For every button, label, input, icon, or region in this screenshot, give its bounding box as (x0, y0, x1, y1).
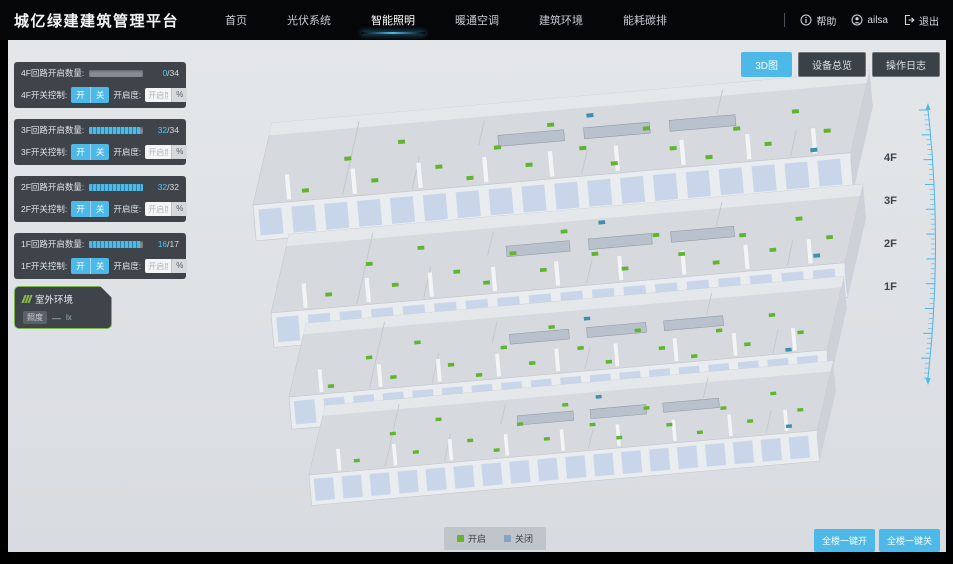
legend-on-swatch (457, 535, 464, 542)
circuit-progress-bar (89, 127, 143, 134)
logout-icon (903, 14, 915, 26)
openness-label: 开启度: (113, 203, 141, 215)
floor-panel-1f: 1F回路开启数量: 16/17 1F开关控制: 开 关 开启度: % (14, 233, 186, 279)
switch-control-label: 2F开关控制: (21, 203, 67, 215)
circuit-progress-bar (89, 70, 143, 77)
info-icon (800, 14, 812, 26)
illuminance-value: — (52, 313, 61, 323)
illuminance-unit: lx (66, 313, 72, 322)
nav-item-1[interactable]: 光伏系统 (285, 0, 333, 40)
legend-off-label: 关闭 (515, 532, 533, 545)
percent-button[interactable]: % (171, 88, 187, 102)
circuit-count-label: 1F回路开启数量: (21, 238, 84, 250)
floor-label-2f: 2F (884, 238, 897, 250)
percent-button[interactable]: % (171, 202, 187, 216)
floor-label-4f: 4F (884, 152, 897, 164)
nav-item-2[interactable]: 智能照明 (369, 0, 417, 40)
main-content: 4F回路开启数量: 0/34 4F开关控制: 开 关 开启度: % 3F回路开启… (8, 40, 946, 552)
openness-input[interactable] (145, 145, 171, 159)
user-name: ailsa (867, 15, 888, 26)
bulk-controls: 全楼一键开 全楼一键关 (814, 529, 940, 552)
outdoor-env-icon (23, 295, 31, 303)
legend-on-label: 开启 (468, 532, 486, 545)
main-nav: 首页 光伏系统 智能照明 暖通空调 建筑环境 能耗碳排 (223, 0, 669, 40)
switch-on-button[interactable]: 开 (71, 258, 91, 274)
app-title: 城亿绿建建筑管理平台 (14, 10, 179, 31)
view-button-0[interactable]: 3D图 (741, 52, 792, 77)
circuit-count-label: 2F回路开启数量: (21, 181, 84, 193)
switch-on-button[interactable]: 开 (71, 87, 91, 103)
floor-panel-4f: 4F回路开启数量: 0/34 4F开关控制: 开 关 开启度: % (14, 62, 186, 108)
outdoor-env-title: 室外环境 (35, 292, 73, 306)
top-header: 城亿绿建建筑管理平台 首页 光伏系统 智能照明 暖通空调 建筑环境 能耗碳排 帮… (0, 0, 953, 40)
circuit-count-value: 16/17 (158, 239, 179, 249)
openness-label: 开启度: (113, 89, 141, 101)
nav-item-0[interactable]: 首页 (223, 0, 249, 40)
illuminance-label: 照度 (23, 311, 47, 324)
user-icon (851, 14, 863, 26)
switch-control-label: 3F开关控制: (21, 146, 67, 158)
help-button[interactable]: 帮助 (800, 13, 836, 28)
logout-button[interactable]: 退出 (903, 13, 939, 28)
switch-on-button[interactable]: 开 (71, 201, 91, 217)
switch-off-button[interactable]: 关 (91, 201, 110, 217)
logout-label: 退出 (919, 13, 939, 28)
help-label: 帮助 (816, 13, 836, 28)
floor-panel-2f: 2F回路开启数量: 32/32 2F开关控制: 开 关 开启度: % (14, 176, 186, 222)
switch-control-label: 4F开关控制: (21, 89, 67, 101)
circuit-count-value: 32/32 (158, 182, 179, 192)
building-3d-view[interactable] (225, 95, 885, 525)
view-button-1[interactable]: 设备总览 (798, 52, 866, 77)
switch-off-button[interactable]: 关 (91, 144, 110, 160)
circuit-count-value: 0/34 (162, 68, 179, 78)
percent-button[interactable]: % (171, 145, 187, 159)
nav-item-4[interactable]: 建筑环境 (537, 0, 585, 40)
all-off-button[interactable]: 全楼一键关 (879, 529, 940, 552)
openness-input[interactable] (145, 88, 171, 102)
switch-off-button[interactable]: 关 (91, 87, 110, 103)
outdoor-env-panel: 室外环境 照度 — lx (14, 286, 112, 329)
nav-item-5[interactable]: 能耗碳排 (621, 0, 669, 40)
floor-axis-labels: 4F 3F 2F 1F (884, 152, 897, 293)
switch-off-button[interactable]: 关 (91, 258, 110, 274)
openness-label: 开启度: (113, 260, 141, 272)
circuit-progress-bar (89, 241, 143, 248)
legend-off-swatch (504, 535, 511, 542)
circuit-count-label: 3F回路开启数量: (21, 124, 84, 136)
user-menu[interactable]: ailsa (851, 14, 888, 26)
lighting-legend: 开启 关闭 (444, 527, 546, 550)
header-divider (784, 13, 785, 27)
floor-label-3f: 3F (884, 195, 897, 207)
circuit-count-value: 32/34 (158, 125, 179, 135)
floor-ruler (906, 102, 946, 386)
circuit-count-label: 4F回路开启数量: (21, 67, 84, 79)
circuit-progress-bar (89, 184, 143, 191)
openness-input[interactable] (145, 202, 171, 216)
all-on-button[interactable]: 全楼一键开 (814, 529, 875, 552)
floor-label-1f: 1F (884, 281, 897, 293)
switch-control-label: 1F开关控制: (21, 260, 67, 272)
view-switcher: 3D图 设备总览 操作日志 (741, 52, 940, 77)
openness-input[interactable] (145, 259, 171, 273)
view-button-2[interactable]: 操作日志 (872, 52, 940, 77)
nav-item-3[interactable]: 暖通空调 (453, 0, 501, 40)
switch-on-button[interactable]: 开 (71, 144, 91, 160)
percent-button[interactable]: % (171, 259, 187, 273)
openness-label: 开启度: (113, 146, 141, 158)
floor-panel-3f: 3F回路开启数量: 32/34 3F开关控制: 开 关 开启度: % (14, 119, 186, 165)
